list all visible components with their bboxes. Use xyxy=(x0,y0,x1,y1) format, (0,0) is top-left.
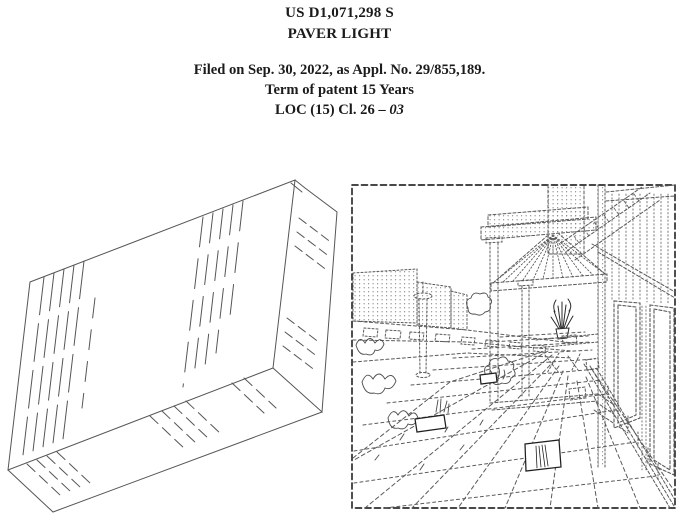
patent-title: PAVER LIGHT xyxy=(0,24,679,45)
hedge xyxy=(353,269,467,330)
patent-meta: Filed on Sep. 30, 2022, as Appl. No. 29/… xyxy=(0,60,679,120)
figure-environmental-view xyxy=(340,170,679,518)
loc-line: LOC (15) Cl. 26 – 03 xyxy=(0,100,679,120)
patent-number: US D1,071,298 S xyxy=(0,3,679,24)
environment-lines xyxy=(352,185,675,508)
paver-outline-lines xyxy=(8,180,337,512)
filed-line: Filed on Sep. 30, 2022, as Appl. No. 29/… xyxy=(0,60,679,80)
patent-header: US D1,071,298 S PAVER LIGHT Filed on Sep… xyxy=(0,3,679,120)
loc-dash: – xyxy=(378,102,385,118)
term-line: Term of patent 15 Years xyxy=(0,80,679,100)
figure-paver-light-perspective xyxy=(0,170,340,518)
loc-prefix: LOC (15) Cl. 26 xyxy=(275,102,378,118)
loc-class: 03 xyxy=(389,102,404,118)
